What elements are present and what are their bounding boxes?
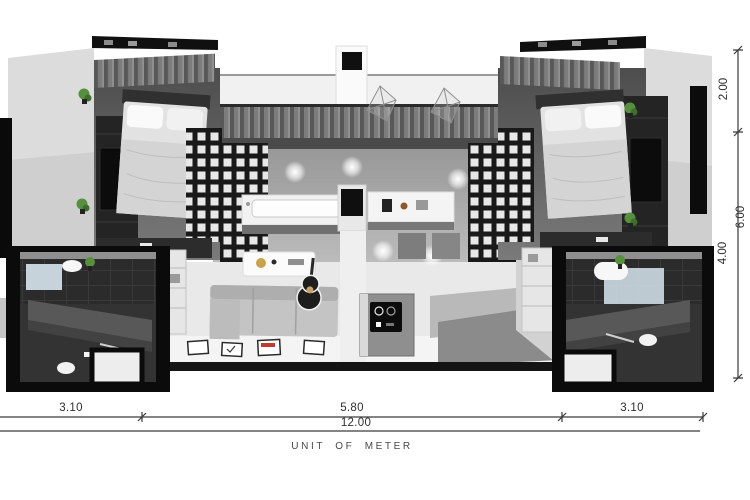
- shoji-screen: [498, 128, 534, 242]
- stool: [432, 233, 460, 259]
- outer-wall: [8, 48, 94, 168]
- tv-screen: [341, 189, 363, 216]
- tub: [594, 262, 628, 280]
- window-slot: [690, 86, 707, 214]
- bathroom-right: [552, 246, 714, 392]
- floorplan-figure: 3.10 5.80 3.10 12.00 2.00 6.00 4.00 UNIT…: [0, 0, 750, 500]
- cooktop: [370, 302, 402, 332]
- right-bedroom: [498, 36, 712, 260]
- shoji-screen: [186, 128, 222, 242]
- kitchen-island: [360, 294, 414, 356]
- red-frame-accent: [261, 343, 275, 347]
- sink-bowl: [57, 362, 75, 374]
- closet-shelving: [522, 248, 556, 332]
- dim-bottom-seg1: 3.10: [41, 402, 101, 414]
- dim-bottom-total: 12.00: [326, 417, 386, 429]
- window-slot: [0, 118, 12, 258]
- shower-tray: [92, 350, 142, 384]
- dim-right-seg1: 2.00: [718, 72, 730, 106]
- shower-tray: [562, 352, 614, 384]
- sink-bowl: [639, 334, 657, 346]
- dim-bottom-seg3: 3.10: [602, 402, 662, 414]
- bathroom-left: [6, 246, 170, 392]
- glass-panel: [26, 264, 62, 290]
- floating-shelf: [368, 192, 454, 230]
- left-bedroom: [0, 36, 222, 260]
- coffee-table: [243, 252, 315, 276]
- bottom-wall: [166, 362, 558, 371]
- stool: [398, 233, 426, 259]
- dim-right-seg3: 4.00: [717, 236, 729, 270]
- dim-right-seg2: 6.00: [735, 200, 747, 234]
- bed: [535, 89, 631, 219]
- unit-caption: UNIT OF METER: [247, 441, 457, 452]
- dim-bottom-seg2: 5.80: [322, 402, 382, 414]
